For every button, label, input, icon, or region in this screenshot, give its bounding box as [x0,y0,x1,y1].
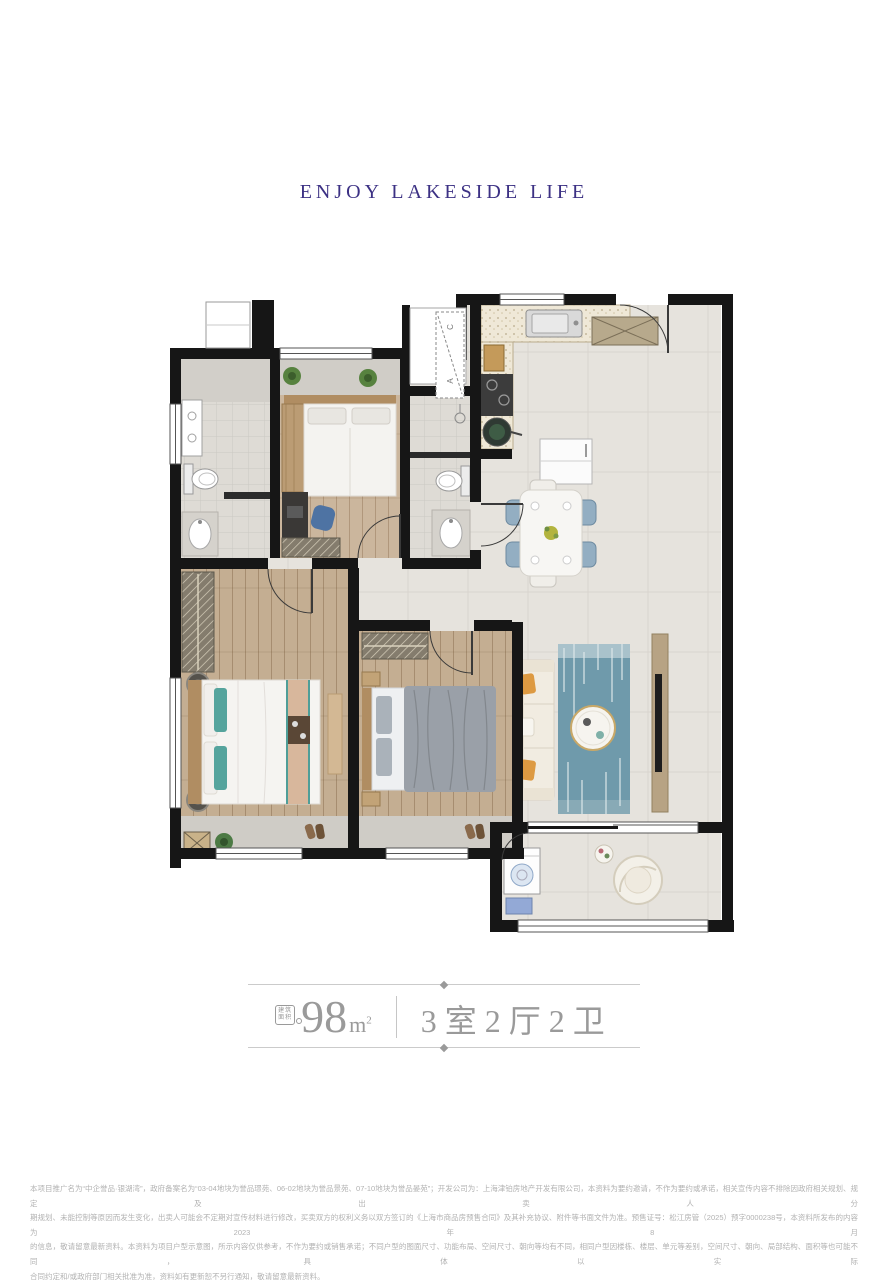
disclaimer-line: 本项目推广名为“中企誉品·银湖湾”，政府备案名为“03-04地块为誉品璟苑、06… [30,1182,858,1211]
pillow [376,696,392,734]
laptop [287,506,303,518]
coffee-machine [484,345,504,371]
bed-headboard [362,688,372,790]
window [386,848,468,859]
window [280,348,372,359]
tv-console [652,634,668,812]
fridge [540,439,592,484]
stove [481,374,513,416]
layout-text: 3室2厅2卫 [421,1005,613,1037]
diamond-ornament [440,1043,448,1051]
area-unit: m2 [349,1012,372,1038]
divider-bottom [248,1047,640,1048]
poster-page: ENJOY LAKESIDE LIFE [0,0,888,1280]
area-value: 98 [301,994,347,1040]
area-badge: 建筑 面积 [275,1005,295,1025]
entry-shoe-cabinet [592,317,658,345]
pillow [376,738,392,776]
sliding-door [224,492,270,499]
shaft-label-a: A [446,378,455,384]
page-title: ENJOY LAKESIDE LIFE [0,181,888,204]
laundry-basket [506,898,532,914]
nightstand [362,672,380,686]
floor-plan-image: C A [168,292,740,944]
badge-line-1: 建筑 [276,1008,294,1015]
bench [328,694,342,774]
badge-line-2: 面积 [276,1015,294,1022]
badge-ring-icon [296,1018,302,1024]
window [170,678,181,808]
diamond-ornament [440,980,448,988]
toilet [436,471,462,491]
pillow [352,408,390,424]
window [170,404,181,464]
disclaimer-line: 期规划、未能控制等原因而发生变化，出卖人可能会不定期对宣传材料进行修改，买卖双方… [30,1211,858,1240]
area-row: 建筑 面积 98 m2 3室2厅2卫 [194,994,694,1040]
area-info: 建筑 面积 98 m2 3室2厅2卫 [194,984,694,1048]
sliding-door-balcony [528,822,698,833]
teal-pillow [214,688,227,732]
divider-top [248,984,640,985]
vertical-divider [396,996,397,1038]
shower-unit [182,400,202,456]
shower-glass [410,452,470,458]
wardrobe [282,538,340,557]
teal-pillow [214,746,227,790]
bed-headboard [188,680,202,804]
window [216,848,302,859]
tv [655,674,662,772]
disclaimer-line: 的信息，敬请留意最新资料。本资料为项目户型示意图，所示内容仅供参考，不作为要约或… [30,1240,858,1269]
bed-tray [288,716,310,744]
nightstand [362,792,380,806]
disclaimer-line: 合同约定和/或政府部门相关批准为准，资料如有更新恕不另行通知，敬请留意最新资料。 [30,1270,858,1280]
window [500,294,564,305]
duct-shaft: C A [436,312,464,398]
side-cabinet [282,404,304,492]
bed-headboard [284,395,396,404]
toilet [192,469,218,489]
pillow [308,408,346,424]
shaft-label-c: C [446,324,455,330]
side-table [595,845,613,863]
coffee-table [571,706,615,750]
balcony-rail-window [518,920,708,932]
disclaimer: 本项目推广名为“中企誉品·银湖湾”，政府备案名为“03-04地块为誉品璟苑、06… [30,1182,858,1280]
